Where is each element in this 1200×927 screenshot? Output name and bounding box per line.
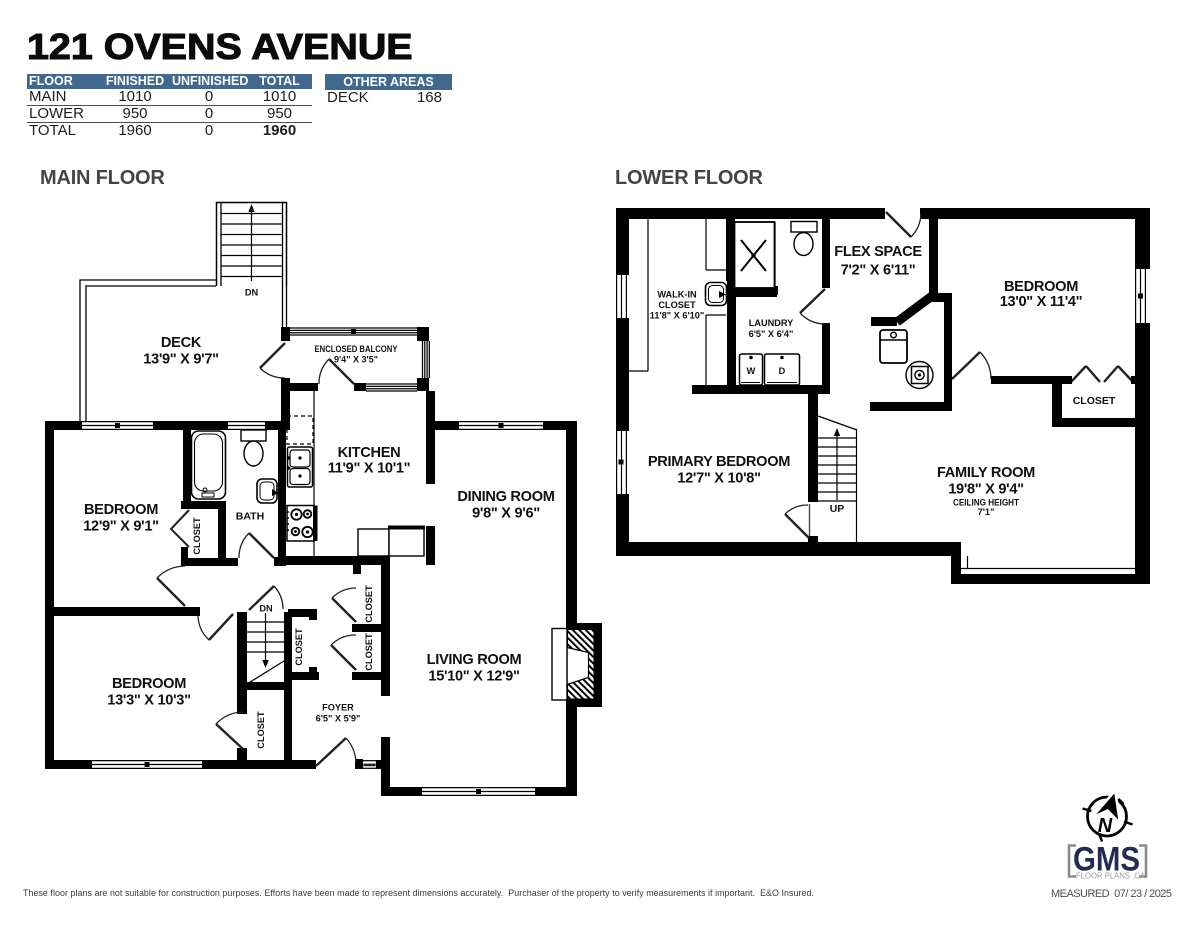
svg-text:CLOSET: CLOSET xyxy=(1073,395,1116,407)
svg-text:13'9" X 9'7": 13'9" X 9'7" xyxy=(143,352,219,368)
svg-text:W: W xyxy=(747,366,756,376)
svg-text:9'4" X 3'5": 9'4" X 3'5" xyxy=(334,355,378,365)
svg-text:12'7" X 10'8": 12'7" X 10'8" xyxy=(677,471,760,487)
svg-text:6'5" X 5'9": 6'5" X 5'9" xyxy=(316,714,361,724)
svg-text:CEILING HEIGHT: CEILING HEIGHT xyxy=(953,498,1019,508)
svg-text:UP: UP xyxy=(830,503,845,515)
svg-text:BEDROOM: BEDROOM xyxy=(1004,279,1078,295)
svg-text:11'8" X 6'10": 11'8" X 6'10" xyxy=(650,311,704,321)
svg-text:12'9" X 9'1": 12'9" X 9'1" xyxy=(83,519,159,535)
svg-text:BEDROOM: BEDROOM xyxy=(112,676,186,692)
svg-text:DECK: DECK xyxy=(161,335,202,351)
svg-text:ENCLOSED BALCONY: ENCLOSED BALCONY xyxy=(315,344,398,354)
svg-text:7'1": 7'1" xyxy=(978,507,995,517)
svg-text:D: D xyxy=(779,366,786,376)
svg-text:FAMILY ROOM: FAMILY ROOM xyxy=(937,465,1035,481)
svg-text:FLOOR PLANS .CA: FLOOR PLANS .CA xyxy=(1076,871,1145,881)
svg-text:N: N xyxy=(1098,815,1113,837)
svg-text:KITCHEN: KITCHEN xyxy=(338,445,401,461)
svg-text:DN: DN xyxy=(245,288,259,298)
svg-text:11'9" X 10'1": 11'9" X 10'1" xyxy=(328,461,411,477)
svg-text:BATH: BATH xyxy=(236,511,264,523)
svg-text:CLOSET: CLOSET xyxy=(658,300,696,310)
svg-text:CLOSET: CLOSET xyxy=(364,633,374,671)
svg-text:6'5" X 6'4": 6'5" X 6'4" xyxy=(749,329,794,339)
svg-text:DN: DN xyxy=(259,604,273,614)
svg-text:LAUNDRY: LAUNDRY xyxy=(749,318,794,328)
svg-text:CLOSET: CLOSET xyxy=(364,585,374,623)
svg-text:13'3" X 10'3": 13'3" X 10'3" xyxy=(107,693,190,709)
svg-text:19'8" X 9'4": 19'8" X 9'4" xyxy=(948,482,1024,498)
svg-text:BEDROOM: BEDROOM xyxy=(84,502,158,518)
svg-text:DINING ROOM: DINING ROOM xyxy=(457,489,554,505)
svg-text:FOYER: FOYER xyxy=(322,703,354,713)
svg-text:MEASURED 07/ 23 / 2025: MEASURED 07/ 23 / 2025 xyxy=(1051,888,1172,900)
svg-text:WALK-IN: WALK-IN xyxy=(657,290,697,300)
svg-text:7'2" X 6'11": 7'2" X 6'11" xyxy=(841,263,916,279)
svg-text:9'8" X 9'6": 9'8" X 9'6" xyxy=(472,506,540,522)
svg-text:13'0" X 11'4": 13'0" X 11'4" xyxy=(1000,294,1083,310)
svg-text:15'10" X 12'9": 15'10" X 12'9" xyxy=(428,669,519,685)
svg-text:CLOSET: CLOSET xyxy=(294,628,304,666)
svg-text:FLEX SPACE: FLEX SPACE xyxy=(834,244,922,260)
svg-text:CLOSET: CLOSET xyxy=(256,711,266,749)
svg-text:LIVING ROOM: LIVING ROOM xyxy=(427,652,522,668)
svg-text:PRIMARY BEDROOM: PRIMARY BEDROOM xyxy=(648,454,790,470)
svg-text:CLOSET: CLOSET xyxy=(192,517,202,555)
